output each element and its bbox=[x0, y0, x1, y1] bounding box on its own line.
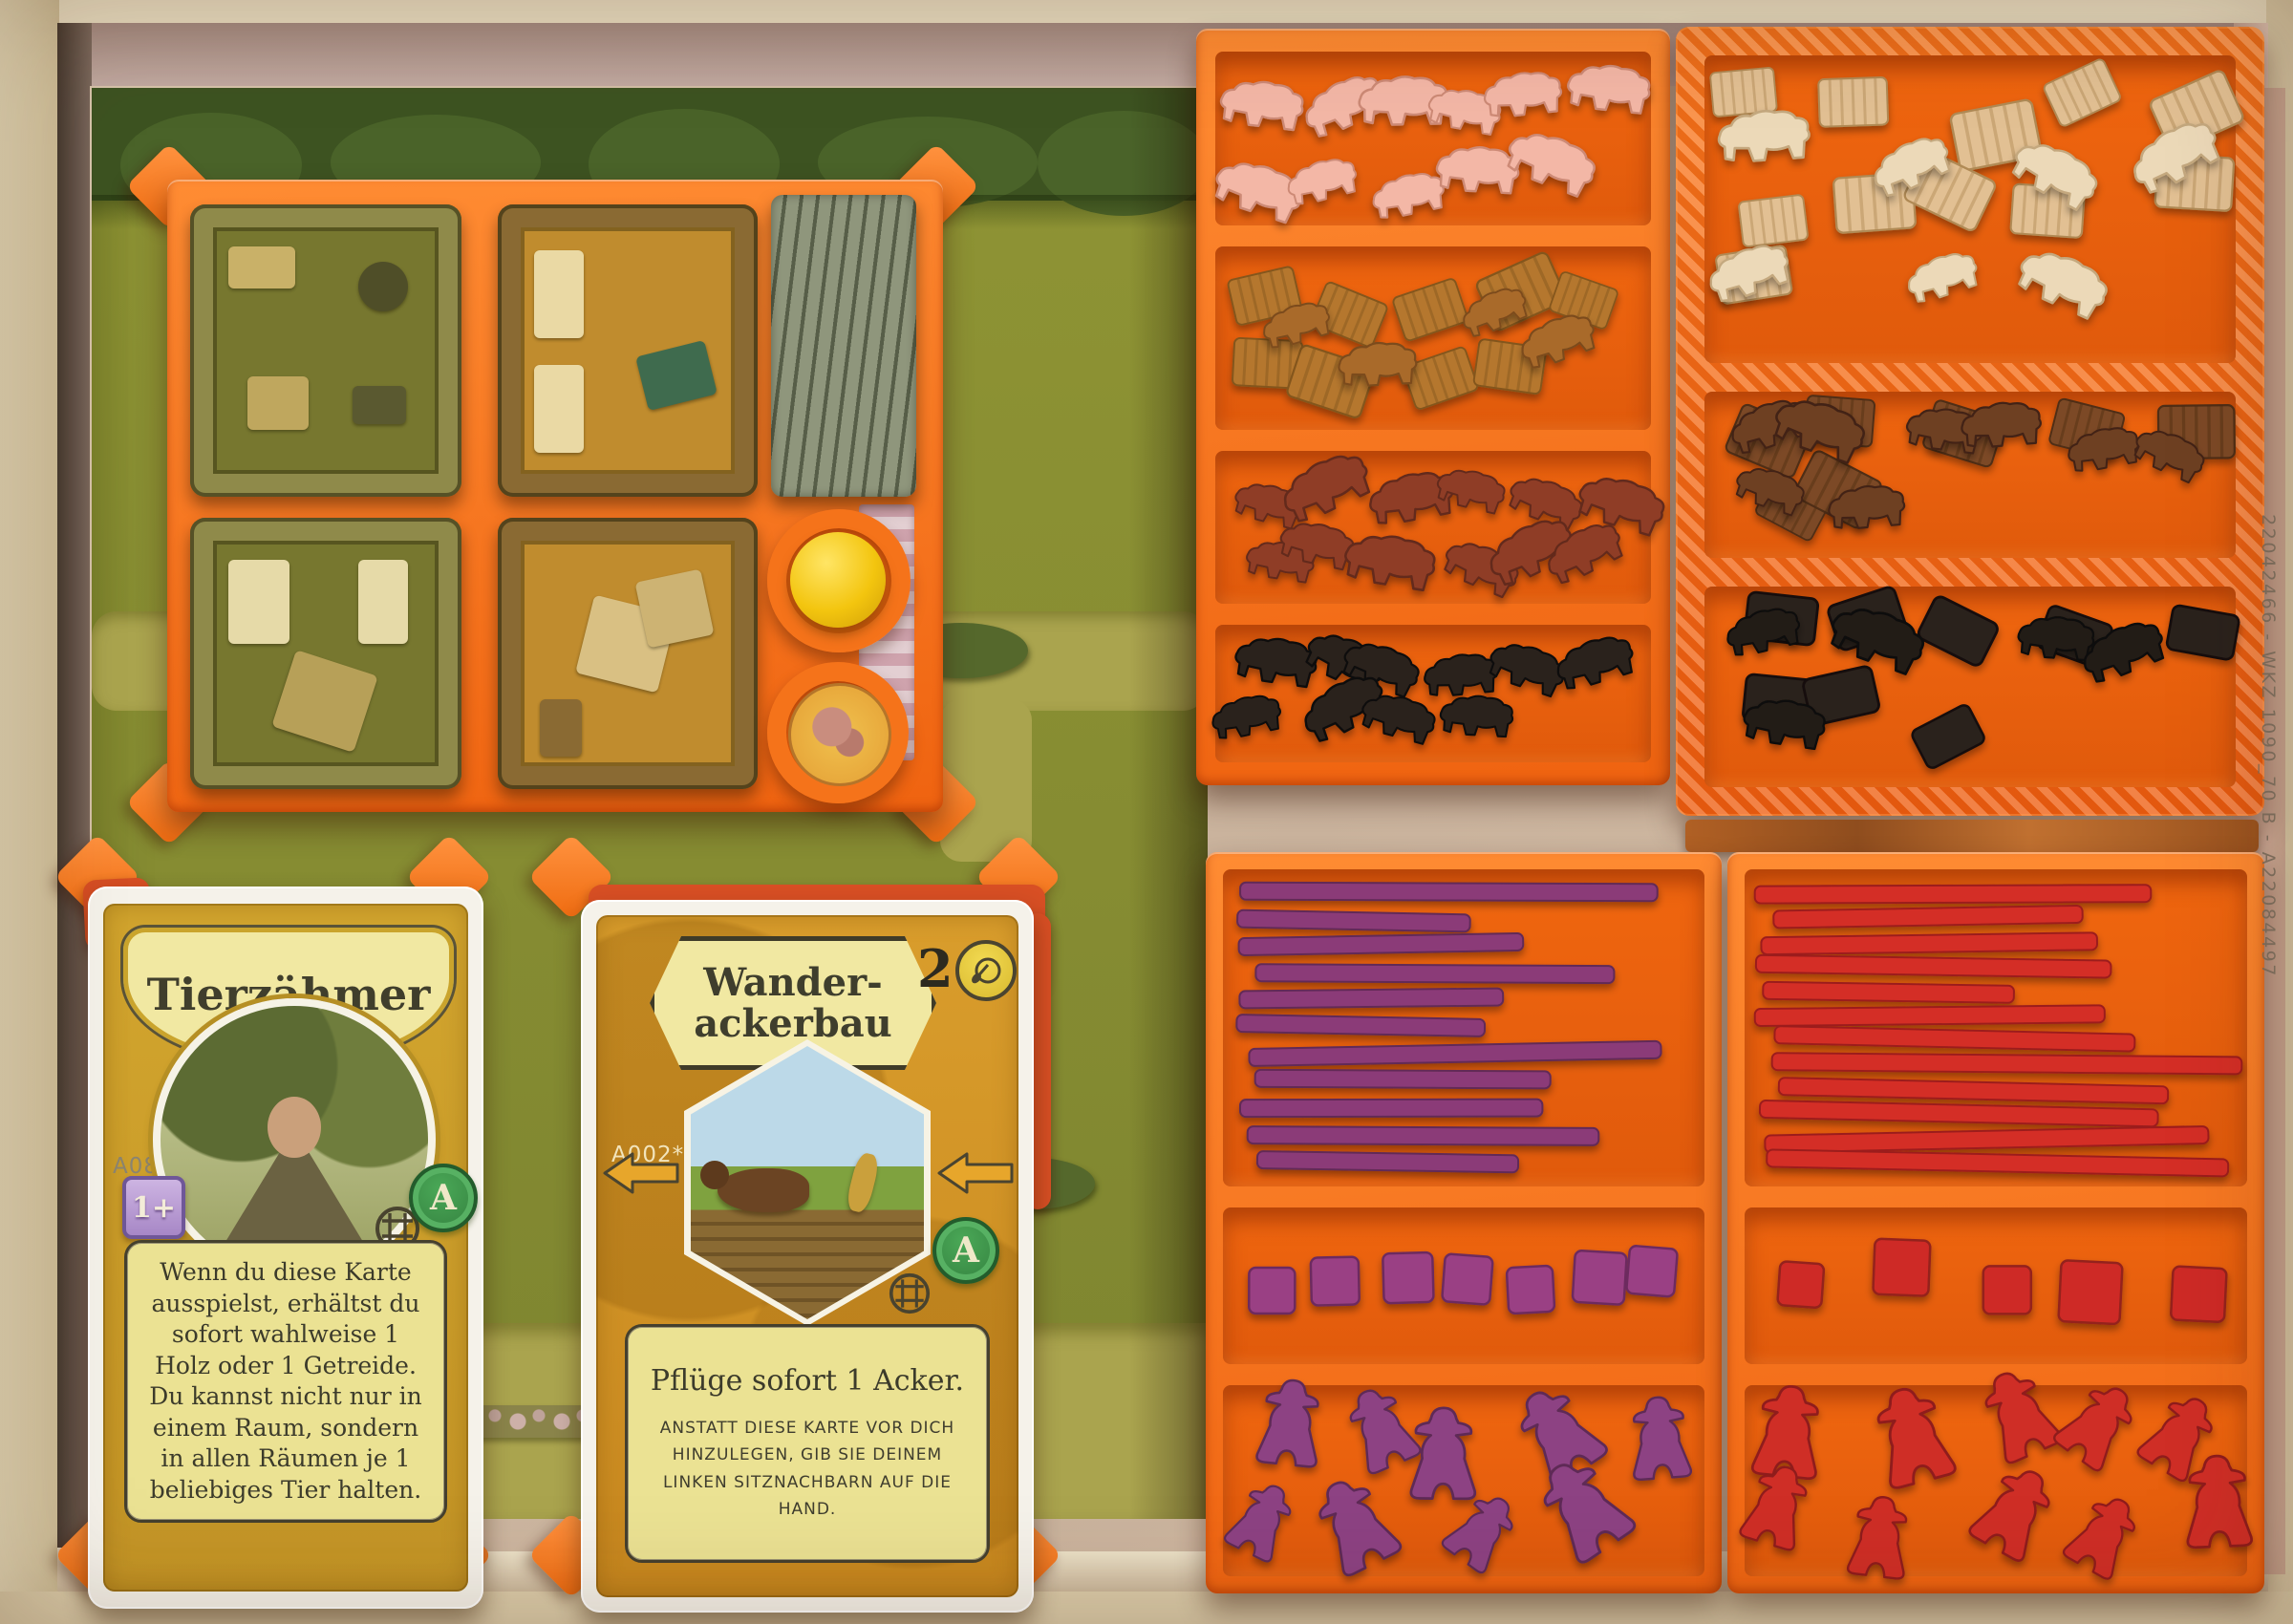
box-wall-left bbox=[57, 23, 92, 1586]
farmer-art bbox=[845, 1151, 881, 1214]
box-rim-top bbox=[0, 0, 2293, 25]
card-stack-wanderackerbau: Wander- ackerbau 2 A002* bbox=[560, 885, 1057, 1620]
bin-brown-pieces bbox=[1704, 392, 2236, 558]
bin-boar-russet bbox=[1215, 451, 1651, 604]
card-body-box: Wenn du diese Karte ausspielst, erhältst… bbox=[124, 1240, 447, 1523]
animal-sorting-tray bbox=[1196, 29, 1670, 785]
bin-wood-caramel bbox=[1215, 246, 1651, 430]
deck-letter-badge: A bbox=[409, 1164, 478, 1232]
bin-tan-pieces bbox=[1704, 55, 2236, 363]
players-badge: 1+ bbox=[122, 1176, 185, 1239]
pass-left-arrow bbox=[936, 1150, 1015, 1196]
card-face: Tierzähmer A086* 1+ A Wenn du diese Kart… bbox=[103, 904, 468, 1592]
figure-face-art bbox=[268, 1097, 321, 1158]
food-plate-icon bbox=[955, 940, 1017, 1001]
game-box-photo: Tierzähmer A086* 1+ A Wenn du diese Kart… bbox=[0, 0, 2293, 1624]
bin-cattle-black bbox=[1215, 625, 1651, 762]
room-tile-wood-1 bbox=[190, 204, 461, 497]
field-grid-icon bbox=[889, 1272, 931, 1314]
card-cost: 2 bbox=[917, 938, 954, 999]
player-tray-red bbox=[1727, 852, 2264, 1593]
bin-purple-cubes bbox=[1223, 1207, 1704, 1364]
cardboard-art-strip bbox=[1685, 820, 2259, 852]
room-tile-wood-2 bbox=[190, 518, 461, 789]
room-tile-clay-1 bbox=[498, 204, 758, 497]
resource-tray-rope bbox=[1676, 27, 2264, 816]
card-body-box: Pflüge sofort 1 Acker. ANSTATT DIESE KAR… bbox=[625, 1324, 990, 1563]
round-cup-ball bbox=[767, 509, 911, 652]
room-tile-clay-2 bbox=[498, 518, 758, 789]
bin-red-sticks bbox=[1745, 869, 2247, 1186]
ox-art bbox=[718, 1168, 809, 1212]
card-body-text: Wenn du diese Karte ausspielst, erhältst… bbox=[142, 1257, 429, 1506]
deck-letter-badge: A bbox=[932, 1217, 999, 1284]
box-edge-print-code: 22042466 - WKZ 1090_70 B - A22084497 bbox=[2254, 383, 2279, 1109]
card-title-line2: ackerbau bbox=[694, 1003, 891, 1044]
bin-red-farmers bbox=[1745, 1385, 2247, 1576]
room-tile-tray bbox=[167, 180, 943, 812]
box-rim-left bbox=[0, 0, 59, 1624]
yellow-wooden-ball bbox=[790, 532, 886, 628]
bin-purple-farmers bbox=[1223, 1385, 1704, 1576]
pass-left-arrow bbox=[602, 1150, 680, 1196]
card-face: Wander- ackerbau 2 A002* bbox=[596, 915, 1018, 1597]
player-tray-purple bbox=[1206, 852, 1722, 1593]
ox-head-art bbox=[700, 1161, 729, 1189]
bin-black-pieces bbox=[1704, 587, 2236, 787]
card-body-small: ANSTATT DIESE KARTE VOR DICH HINZULEGEN,… bbox=[647, 1415, 968, 1522]
card-body-main: Pflüge sofort 1 Acker. bbox=[651, 1364, 964, 1398]
sleeping-farmer-token bbox=[788, 683, 891, 786]
card-title-line1: Wander- bbox=[703, 962, 883, 1003]
gray-tile-stack bbox=[771, 195, 916, 497]
bin-sheep-pink bbox=[1215, 52, 1651, 225]
card-stack-tierzaehmer: Tierzähmer A086* 1+ A Wenn du diese Kart… bbox=[88, 887, 483, 1609]
bin-purple-sticks bbox=[1223, 869, 1704, 1186]
round-cup-token bbox=[767, 662, 909, 803]
bin-red-cubes bbox=[1745, 1207, 2247, 1364]
